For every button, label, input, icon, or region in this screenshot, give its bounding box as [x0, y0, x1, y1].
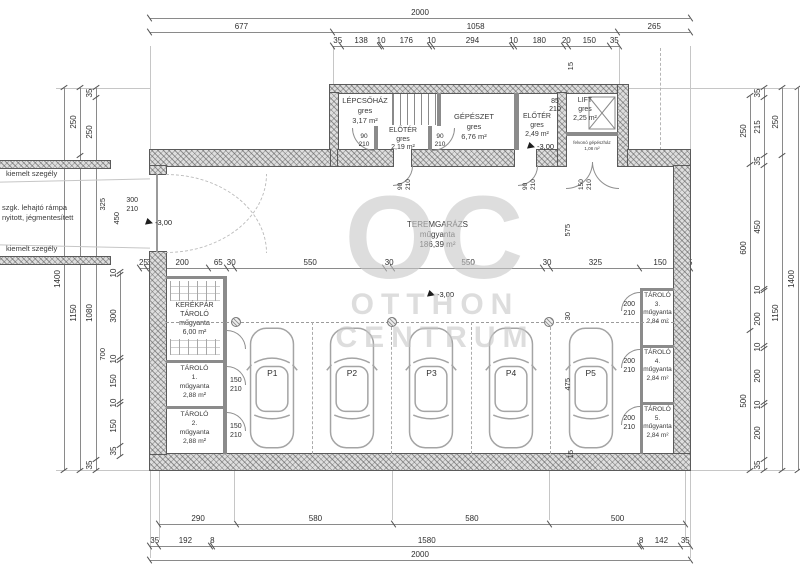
dim-chain-right-detail: 352153545010200102001020035 — [752, 88, 764, 470]
dim-chain-top-detail: 351381017610294101802015035 — [333, 34, 619, 46]
dim-ramp-width: 325 — [98, 198, 107, 211]
wall-lift-right — [618, 85, 628, 166]
wall-left-outer — [150, 252, 166, 454]
car-top-view-icon — [403, 325, 459, 451]
dim-stall-top: 30 — [563, 312, 572, 320]
room-gepeszet: GÉPÉSZETgres6,76 m² — [436, 112, 512, 142]
parking-stall-label: P1 — [265, 368, 279, 378]
garage-gate-line — [156, 174, 158, 252]
dim-chain-right-rooms: 250600500 — [738, 96, 750, 470]
ramp-curb-top — [0, 161, 110, 168]
room-tarolo-1: TÁROLÓ1.műgyanta2,88 m² — [166, 364, 223, 400]
level-flag-icon — [527, 142, 536, 151]
extension-line — [685, 470, 686, 540]
dim-chain-mid: 2530200653055030550303251502015 — [140, 256, 690, 268]
wall-left-outer — [150, 166, 166, 174]
dim-chain-left-outer: 1400 — [52, 88, 64, 470]
door-swing-arc — [592, 162, 619, 189]
room-tarolo-5: TÁROLÓ5.műgyanta2,84 m² — [641, 406, 674, 440]
bike-rack-symbol — [170, 339, 220, 355]
ramp-curb-bottom-label: kiemelt szegély — [6, 244, 106, 253]
room-kerekpar-tarolo: KERÉKPÁRTÁROLÓműgyanta6,00 m² — [166, 301, 223, 337]
reference-dashed-line — [660, 48, 661, 150]
extension-line — [56, 470, 150, 471]
dim-chain-top-spans: 6771058265 — [150, 20, 690, 32]
wall-storage-divider — [166, 406, 223, 409]
dim-garage-upper: 575 — [563, 224, 572, 237]
extension-line — [619, 46, 620, 85]
wall-top-right — [628, 150, 690, 166]
room-eloter2: ELŐTÉRgres2,49 m² — [514, 112, 560, 139]
dim-left-bay: 700 — [98, 348, 107, 361]
door-size-lobby: 150210 — [578, 164, 593, 190]
dim-chain-left-inner: 35250108035 — [84, 88, 96, 470]
ramp-curb-bottom — [0, 257, 110, 264]
door-size-lift: 85210 — [547, 98, 563, 114]
dim-chain-bottom-total: 2000 — [150, 548, 690, 560]
column-marker — [231, 317, 241, 327]
extension-line — [690, 46, 691, 150]
car-top-view-icon — [324, 325, 380, 451]
floor-plan-sheet: 2000 6771058265 351381017610294101802015… — [0, 0, 800, 565]
dim-chain-bottom-spans: 290580580500 — [159, 512, 685, 524]
dim-chain-left-storage: 10300101501015035 — [108, 272, 120, 456]
room-tarolo-2: TÁROLÓ2.műgyanta2,88 m² — [166, 410, 223, 446]
room-lift-machine: felvonó gépészház1,08 m² — [566, 140, 618, 151]
wall-storage-right-top — [640, 288, 674, 291]
ramp-curb-top-label: kiemelt szegély — [6, 169, 106, 178]
door-size-eloter1-left: 90210 — [356, 133, 372, 149]
door-size-tarolo-3: 200210 — [617, 300, 635, 318]
level-flag-icon — [427, 290, 436, 299]
room-lift: LIFTgres2,25 m² — [564, 96, 606, 123]
room-lepcsohaz: LÉPCSŐHÁZgres3,17 m² — [336, 96, 394, 126]
extension-line — [150, 46, 151, 150]
wall-bottom — [150, 454, 690, 470]
parking-stall-label: P4 — [504, 368, 518, 378]
column-marker — [544, 317, 554, 327]
door-size-garage-right: 90210 — [522, 164, 537, 190]
dim-chain-bottom-detail: 3519281580814235 — [150, 534, 690, 546]
wall-band-bottom — [537, 150, 558, 166]
dim-stall-length: 475 — [563, 378, 572, 391]
dim-lift-top: 15 — [566, 62, 575, 70]
wall-right-outer — [674, 166, 690, 454]
dim-chain-right-outer: 1400 — [786, 88, 798, 470]
level-flag-icon — [145, 218, 154, 227]
parking-stall: P1 — [233, 322, 312, 454]
parking-stall: P3 — [391, 322, 471, 454]
door-size-garage-left: 90210 — [397, 164, 412, 190]
extension-line — [159, 470, 160, 540]
wall-band-top — [330, 85, 628, 93]
column-marker — [387, 317, 397, 327]
dim-chain-left-mid: 2501150 — [68, 88, 80, 470]
room-tarolo-3: TÁROLÓ3.műgyanta2,84 m² — [641, 292, 674, 326]
dim-chain-top-total: 2000 — [150, 6, 690, 18]
level-marker-eloter: -3,00 — [528, 142, 554, 151]
level-marker-garage: -3,00 — [428, 290, 454, 299]
wall-storage-divider — [640, 345, 674, 348]
dim-ramp-opening: 450 — [112, 212, 121, 225]
wall-lift-bottom — [566, 132, 618, 136]
parking-stall-label: P2 — [345, 368, 359, 378]
wall-garage-top-left — [150, 150, 330, 166]
room-tarolo-4: TÁROLÓ4.műgyanta2,84 m² — [641, 349, 674, 383]
car-top-view-icon — [244, 325, 300, 451]
level-marker-ramp: -3,00 — [146, 218, 172, 227]
bike-rack-symbol — [170, 281, 220, 301]
parking-stall: P4 — [471, 322, 551, 454]
dim-chain-right-mid: 2501150 — [770, 88, 782, 470]
parking-stall-label: P5 — [583, 368, 597, 378]
wall-storage-divider — [166, 360, 223, 363]
stair-treads — [392, 94, 438, 125]
dim-bottom-edge: 15 — [566, 450, 575, 458]
extension-line — [333, 46, 334, 85]
wall-storage-divider — [640, 402, 674, 405]
parking-stall: P2 — [312, 322, 392, 454]
wall-storage-left-top — [166, 276, 226, 279]
room-teremgarazs: TEREMGARÁZSműgyanta186,39 m² — [390, 220, 485, 250]
car-top-view-icon — [483, 325, 539, 451]
parking-stall-label: P3 — [424, 368, 438, 378]
room-eloter1: ELŐTÉRgres2,19 m² — [379, 127, 427, 153]
wall-band-bottom — [412, 150, 514, 166]
